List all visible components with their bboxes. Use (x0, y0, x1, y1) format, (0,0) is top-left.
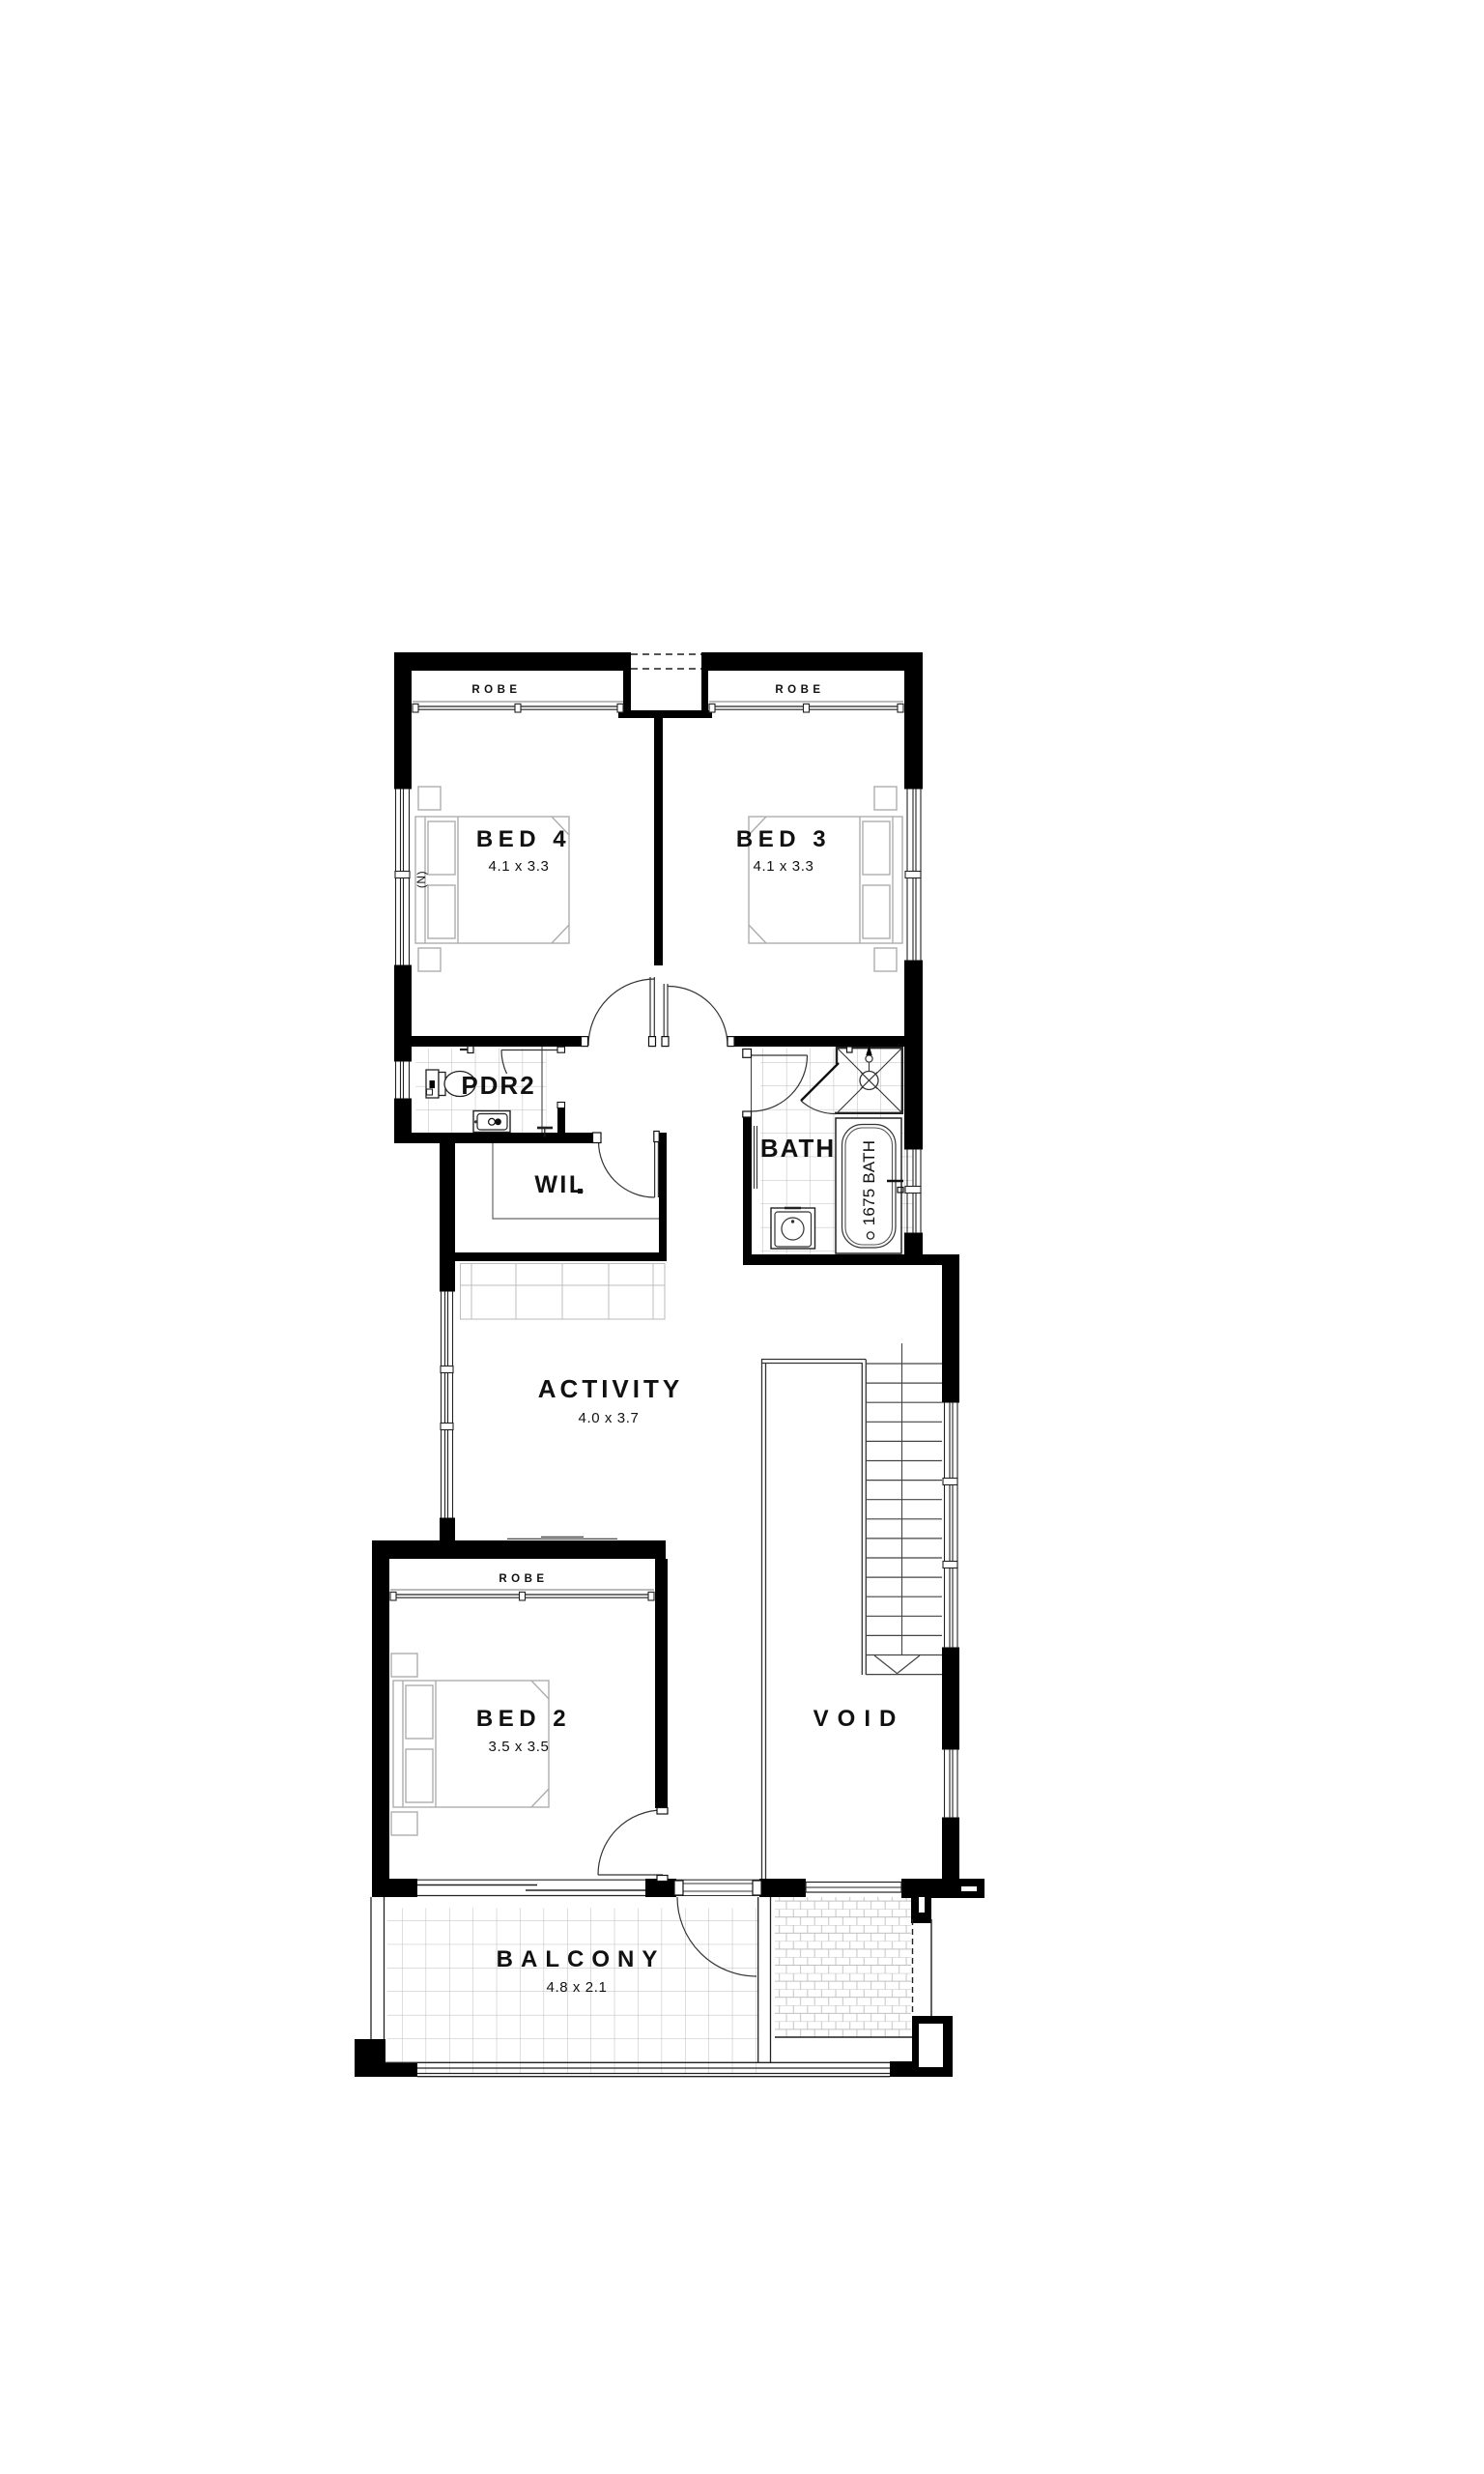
svg-text:WIL: WIL (534, 1171, 585, 1198)
svg-text:1675 BATH: 1675 BATH (860, 1140, 878, 1225)
svg-text:ACTIVITY: ACTIVITY (538, 1374, 683, 1403)
svg-text:4.8 x 2.1: 4.8 x 2.1 (547, 1979, 608, 1996)
svg-text:BED 4: BED 4 (476, 826, 571, 852)
svg-text:ROBE: ROBE (499, 1573, 548, 1585)
svg-text:3.5 x 3.5: 3.5 x 3.5 (489, 1739, 550, 1755)
svg-text:(N): (N) (414, 871, 428, 888)
svg-text:VOID: VOID (813, 1706, 905, 1732)
svg-text:ROBE: ROBE (471, 684, 521, 696)
svg-text:4.0 x 3.7: 4.0 x 3.7 (579, 1410, 640, 1426)
svg-text:BATH: BATH (760, 1134, 836, 1163)
svg-text:4.1 x 3.3: 4.1 x 3.3 (489, 858, 550, 875)
svg-text:ROBE: ROBE (775, 684, 824, 696)
svg-text:PDR2: PDR2 (461, 1071, 535, 1100)
svg-text:BED 3: BED 3 (736, 826, 831, 852)
svg-text:4.1 x 3.3: 4.1 x 3.3 (754, 858, 814, 875)
svg-text:BED 2: BED 2 (476, 1706, 571, 1732)
svg-text:BALCONY: BALCONY (497, 1946, 666, 1972)
